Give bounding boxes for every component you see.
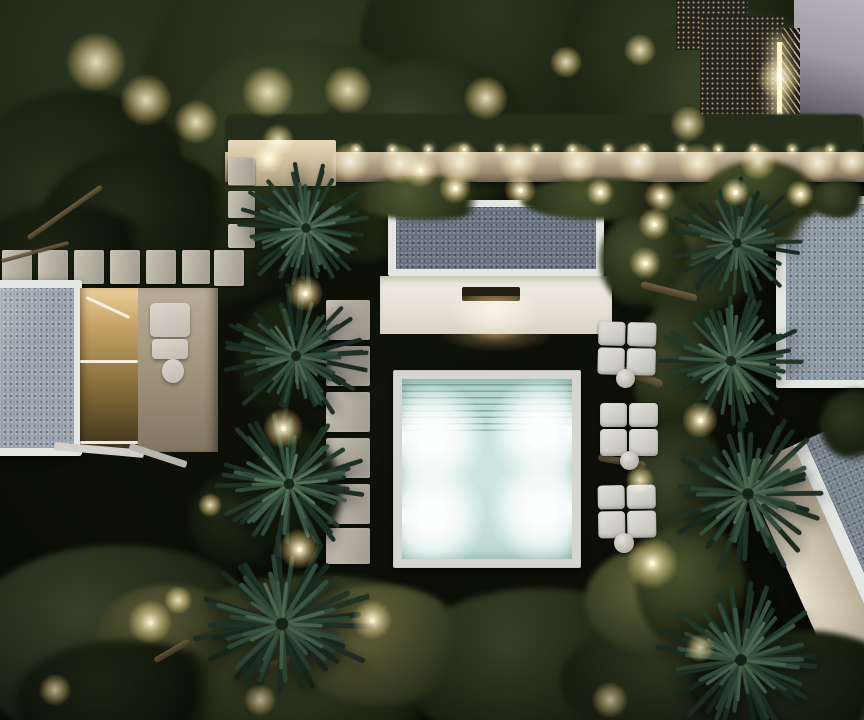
garden-light <box>242 66 294 118</box>
garden-light <box>198 493 222 517</box>
garden-light <box>550 46 582 78</box>
garden-light <box>164 586 192 614</box>
garden-light-core <box>650 561 655 566</box>
garden-light-core <box>681 148 684 151</box>
garden-lights <box>0 0 864 720</box>
garden-light-core <box>643 261 648 266</box>
garden-light <box>626 466 654 494</box>
garden-light <box>174 100 218 144</box>
garden-light-core <box>717 148 720 151</box>
garden-light-core <box>453 186 458 191</box>
garden-light-core <box>266 156 271 161</box>
garden-light-core <box>658 194 663 199</box>
garden-light-core <box>733 190 738 195</box>
garden-light-core <box>148 620 153 625</box>
garden-light-core <box>571 148 574 151</box>
garden-light <box>757 56 801 100</box>
garden-light-core <box>518 188 523 193</box>
garden-light <box>66 32 126 92</box>
garden-light-core <box>798 192 803 197</box>
garden-light-core <box>355 148 358 151</box>
garden-light-core <box>297 547 302 552</box>
garden-light-core <box>598 190 603 195</box>
garden-light-core <box>281 426 286 431</box>
garden-light <box>592 682 628 718</box>
garden-light <box>324 66 372 114</box>
garden-light-core <box>643 148 646 151</box>
garden-light <box>670 106 706 142</box>
garden-light <box>838 148 864 176</box>
garden-light-core <box>753 148 756 151</box>
garden-light-core <box>303 291 308 296</box>
garden-light-core <box>427 148 430 151</box>
garden-light-core <box>607 148 610 151</box>
garden-light <box>120 74 172 126</box>
garden-light-core <box>499 148 502 151</box>
garden-light-core <box>463 148 466 151</box>
garden-light-core <box>652 222 657 227</box>
garden-light-core <box>791 148 794 151</box>
garden-light <box>686 634 714 662</box>
aerial-villa-scene <box>0 0 864 720</box>
garden-light <box>624 34 656 66</box>
garden-light <box>558 143 598 183</box>
garden-light <box>39 674 71 706</box>
garden-light <box>464 76 508 120</box>
garden-light-core <box>698 418 703 423</box>
garden-light-core <box>829 148 832 151</box>
garden-light-core <box>391 148 394 151</box>
garden-light-core <box>370 618 375 623</box>
garden-light-core <box>535 148 538 151</box>
garden-light <box>244 684 276 716</box>
